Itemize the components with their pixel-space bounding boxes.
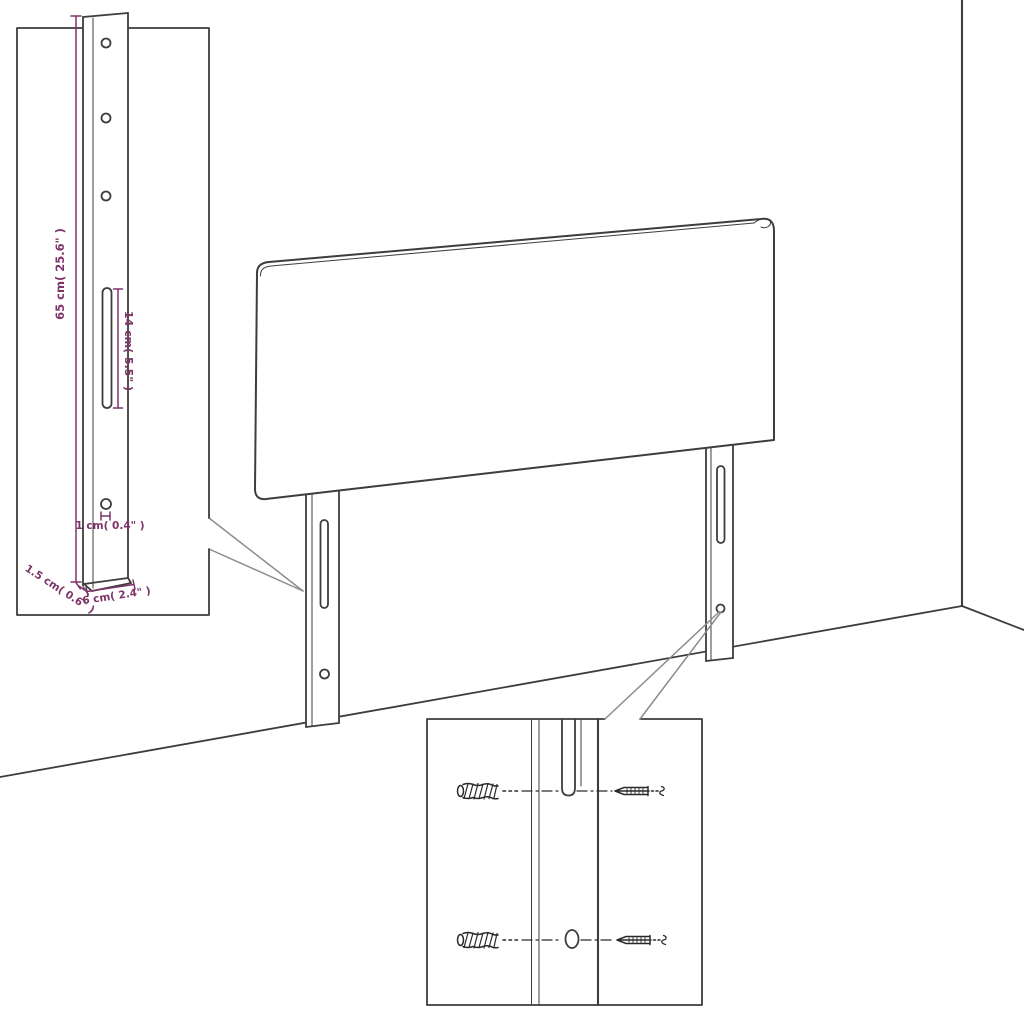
floor-line-right bbox=[962, 606, 1024, 630]
label-slot-length: 14 cm( 5.5" ) bbox=[122, 311, 135, 391]
diagram-canvas: 65 cm( 25.6" ) 14 cm( 5.5" ) 1 cm( 0.4" … bbox=[0, 0, 1024, 1024]
headboard bbox=[255, 219, 774, 727]
mounting-detail-inset bbox=[427, 719, 702, 1005]
callout-left-bracket bbox=[209, 518, 303, 591]
bracket-dimension-inset: 65 cm( 25.6" ) 14 cm( 5.5" ) 1 cm( 0.4" … bbox=[17, 13, 209, 616]
inset-frame bbox=[427, 719, 702, 1005]
headboard-left-leg bbox=[303, 467, 339, 727]
label-bracket-height: 65 cm( 25.6" ) bbox=[53, 228, 67, 320]
headboard-panel bbox=[255, 219, 774, 500]
bracket-drawing bbox=[83, 13, 131, 591]
product-dimension-diagram: 65 cm( 25.6" ) 14 cm( 5.5" ) 1 cm( 0.4" … bbox=[0, 0, 1024, 1024]
label-hole-diameter: 1 cm( 0.4" ) bbox=[75, 520, 144, 532]
